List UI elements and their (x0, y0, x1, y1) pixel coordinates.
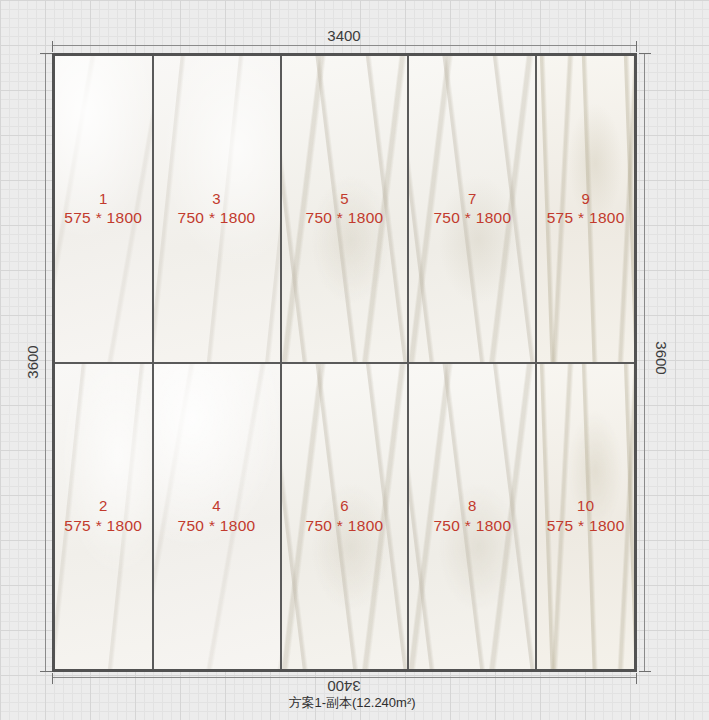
tile-3[interactable]: 3 750 * 1800 (154, 56, 280, 362)
tile-size: 575 * 1800 (547, 516, 625, 535)
tile-8[interactable]: 8 750 * 1800 (409, 364, 535, 670)
tile-size: 750 * 1800 (178, 516, 256, 535)
tile-number: 2 (64, 497, 142, 516)
dimension-line-top (52, 45, 637, 46)
dimension-label-left: 3600 (24, 345, 41, 378)
tile-label: 7 750 * 1800 (433, 190, 511, 228)
tile-number: 3 (178, 190, 256, 209)
tile-label: 8 750 * 1800 (433, 497, 511, 535)
tile-label: 5 750 * 1800 (305, 190, 383, 228)
tile-number: 1 (64, 190, 142, 209)
tile-1[interactable]: 1 575 * 1800 (55, 56, 152, 362)
tile-number: 7 (433, 190, 511, 209)
tile-size: 750 * 1800 (433, 208, 511, 227)
tile-label: 4 750 * 1800 (178, 497, 256, 535)
tile-size: 575 * 1800 (64, 208, 142, 227)
tile-2[interactable]: 2 575 * 1800 (55, 364, 152, 670)
dimension-line-left (45, 53, 46, 672)
dimension-line-right (644, 53, 645, 672)
tile-number: 6 (305, 497, 383, 516)
tile-size: 575 * 1800 (547, 208, 625, 227)
tile-size: 750 * 1800 (305, 516, 383, 535)
tile-4[interactable]: 4 750 * 1800 (154, 364, 280, 670)
tile-label: 9 575 * 1800 (547, 190, 625, 228)
tile-7[interactable]: 7 750 * 1800 (409, 56, 535, 362)
layout-canvas: 3400 3400 3600 3600 1 575 * 1800 3 750 *… (0, 0, 709, 720)
tile-5[interactable]: 5 750 * 1800 (282, 56, 408, 362)
tile-label: 6 750 * 1800 (305, 497, 383, 535)
tile-number: 5 (305, 190, 383, 209)
tile-9[interactable]: 9 575 * 1800 (537, 56, 634, 362)
tile-size: 750 * 1800 (178, 208, 256, 227)
wall-slab-grid: 1 575 * 1800 3 750 * 1800 5 750 * 1800 7… (52, 53, 637, 672)
tile-size: 750 * 1800 (433, 516, 511, 535)
tile-label: 2 575 * 1800 (64, 497, 142, 535)
tile-label: 10 575 * 1800 (547, 497, 625, 535)
tile-6[interactable]: 6 750 * 1800 (282, 364, 408, 670)
dimension-label-right: 3600 (653, 341, 670, 374)
tile-number: 8 (433, 497, 511, 516)
tile-number: 4 (178, 497, 256, 516)
tile-number: 10 (547, 497, 625, 516)
plan-caption: 方案1-副本(12.240m²) (288, 694, 415, 712)
tile-label: 3 750 * 1800 (178, 190, 256, 228)
tile-number: 9 (547, 190, 625, 209)
tile-label: 1 575 * 1800 (64, 190, 142, 228)
tile-size: 575 * 1800 (64, 516, 142, 535)
dimension-label-bottom: 3400 (327, 678, 360, 695)
tile-10[interactable]: 10 575 * 1800 (537, 364, 634, 670)
tile-size: 750 * 1800 (305, 208, 383, 227)
dimension-label-top: 3400 (327, 27, 360, 44)
